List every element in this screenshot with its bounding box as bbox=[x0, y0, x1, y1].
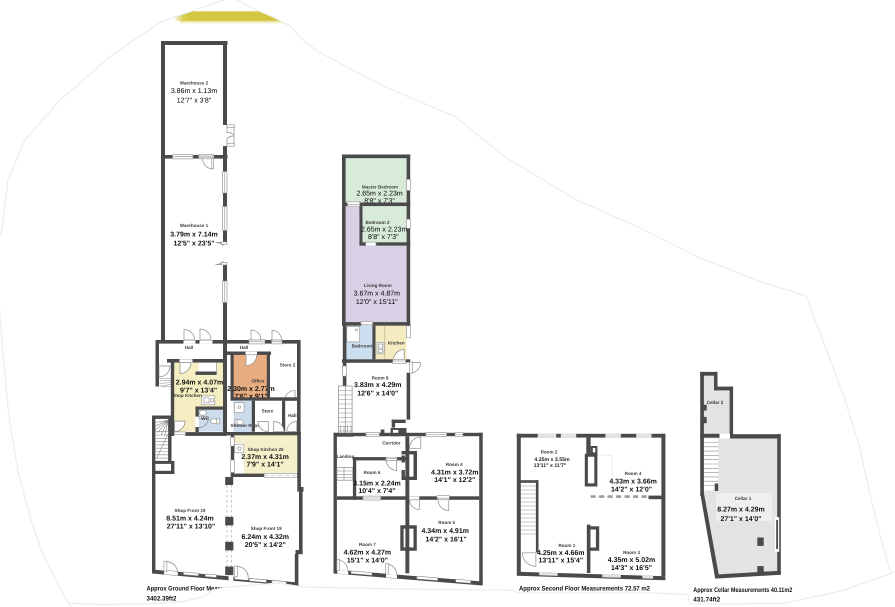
svg-text:Approx Cellar Measurements 40.: Approx Cellar Measurements 40.11m2 bbox=[693, 587, 792, 594]
svg-text:Living Room: Living Room bbox=[364, 283, 392, 288]
svg-text:4.62m x 4.27m: 4.62m x 4.27m bbox=[344, 549, 391, 556]
svg-text:Hall: Hall bbox=[240, 345, 248, 350]
svg-text:4.33m x 3.66m: 4.33m x 3.66m bbox=[609, 478, 656, 485]
svg-text:Room 1: Room 1 bbox=[558, 543, 575, 548]
svg-text:10'4" x 7'4": 10'4" x 7'4" bbox=[358, 488, 395, 495]
svg-text:14'1" x 12'2": 14'1" x 12'2" bbox=[434, 477, 475, 484]
svg-text:6.24m x 4.32m: 6.24m x 4.32m bbox=[242, 534, 289, 541]
svg-text:4.35m x 5.02m: 4.35m x 5.02m bbox=[608, 557, 655, 564]
svg-text:Warehouse 1: Warehouse 1 bbox=[180, 223, 209, 228]
svg-text:Kitchen: Kitchen bbox=[388, 340, 405, 345]
svg-text:Hall: Hall bbox=[288, 413, 296, 418]
svg-text:Room 7: Room 7 bbox=[359, 542, 376, 547]
svg-text:4.25m x 3.55m: 4.25m x 3.55m bbox=[534, 457, 570, 463]
svg-text:3.79m x 7.14m: 3.79m x 7.14m bbox=[170, 232, 217, 239]
svg-text:Bedroom 2: Bedroom 2 bbox=[366, 220, 390, 225]
svg-text:Store 2: Store 2 bbox=[280, 362, 296, 367]
svg-text:27'1" x 14'0": 27'1" x 14'0" bbox=[720, 516, 761, 523]
svg-text:Warehouse 2: Warehouse 2 bbox=[180, 81, 209, 86]
svg-text:4.31m x 3.72m: 4.31m x 3.72m bbox=[431, 469, 478, 476]
svg-text:Room 6: Room 6 bbox=[364, 470, 381, 475]
svg-text:3.15m x 2.24m: 3.15m x 2.24m bbox=[353, 481, 400, 488]
svg-text:13'11" x 11'7": 13'11" x 11'7" bbox=[534, 463, 567, 469]
svg-text:3.83m x 4.29m: 3.83m x 4.29m bbox=[354, 382, 401, 389]
svg-text:Landing: Landing bbox=[337, 454, 355, 459]
svg-text:2.65m x 2.23m: 2.65m x 2.23m bbox=[356, 191, 402, 198]
svg-text:Corridor: Corridor bbox=[382, 440, 401, 445]
svg-text:Shop Front 19: Shop Front 19 bbox=[251, 526, 282, 531]
svg-text:8.27m x 4.29m: 8.27m x 4.29m bbox=[717, 507, 764, 514]
svg-text:Room 5: Room 5 bbox=[438, 520, 455, 525]
svg-text:Hall: Hall bbox=[185, 345, 193, 350]
svg-text:14'2" x 16'1": 14'2" x 16'1" bbox=[426, 536, 467, 543]
svg-text:Room 9: Room 9 bbox=[372, 375, 389, 380]
svg-text:27'11" x 13'10": 27'11" x 13'10" bbox=[167, 523, 216, 530]
svg-text:Bathroom: Bathroom bbox=[352, 344, 374, 349]
svg-text:14'3" x 16'5": 14'3" x 16'5" bbox=[611, 565, 652, 572]
svg-text:7'9" x 14'1": 7'9" x 14'1" bbox=[246, 462, 283, 469]
svg-text:4.34m x 4.91m: 4.34m x 4.91m bbox=[421, 528, 468, 535]
svg-text:Cellar 2: Cellar 2 bbox=[707, 400, 724, 405]
svg-text:Store: Store bbox=[262, 409, 274, 414]
svg-text:2.37m x 4.31m: 2.37m x 4.31m bbox=[241, 454, 288, 461]
svg-text:3.86m x 1.13m: 3.86m x 1.13m bbox=[171, 88, 217, 95]
svg-text:3.67m x 4.87m: 3.67m x 4.87m bbox=[354, 291, 400, 298]
svg-text:Shop Kitchen: Shop Kitchen bbox=[172, 393, 202, 398]
svg-text:WC: WC bbox=[201, 416, 209, 421]
svg-text:12'7" x 3'8": 12'7" x 3'8" bbox=[177, 98, 212, 105]
svg-text:8.51m x 4.24m: 8.51m x 4.24m bbox=[166, 516, 213, 523]
svg-text:Room 3: Room 3 bbox=[623, 550, 640, 555]
svg-text:12'5" x 23'5": 12'5" x 23'5" bbox=[173, 241, 214, 248]
svg-text:3402.39ft2: 3402.39ft2 bbox=[147, 596, 177, 603]
svg-text:2.94m x 4.07m: 2.94m x 4.07m bbox=[176, 379, 223, 386]
svg-text:Shower Room: Shower Room bbox=[231, 423, 262, 428]
svg-text:Office: Office bbox=[251, 379, 264, 384]
svg-text:12'6" x 14'0": 12'6" x 14'0" bbox=[357, 390, 398, 397]
svg-text:4.25m x 4.66m: 4.25m x 4.66m bbox=[537, 550, 584, 557]
svg-text:14'2" x 12'0": 14'2" x 12'0" bbox=[611, 487, 652, 494]
svg-text:12'0" x 15'11": 12'0" x 15'11" bbox=[356, 299, 398, 306]
svg-text:Cellar 1: Cellar 1 bbox=[735, 496, 752, 501]
svg-text:Master Bedroom: Master Bedroom bbox=[362, 184, 398, 189]
svg-text:Approx Second Floor Measuremen: Approx Second Floor Measurements 72.57 m… bbox=[519, 585, 650, 592]
svg-text:2.65m x 2.23m: 2.65m x 2.23m bbox=[361, 226, 407, 233]
svg-text:Room 4: Room 4 bbox=[625, 471, 642, 476]
svg-text:Room 4: Room 4 bbox=[446, 462, 463, 467]
svg-text:8'8" x 7'3": 8'8" x 7'3" bbox=[368, 234, 399, 241]
svg-text:13'11" x 15'4": 13'11" x 15'4" bbox=[538, 557, 583, 564]
svg-text:15'1" x 14'0": 15'1" x 14'0" bbox=[347, 558, 388, 565]
svg-text:Shop Front 19: Shop Front 19 bbox=[175, 508, 206, 513]
svg-text:Shop Kitchen 26: Shop Kitchen 26 bbox=[248, 447, 284, 452]
svg-text:431.74ft2: 431.74ft2 bbox=[693, 596, 720, 603]
svg-text:20'5" x 14'2": 20'5" x 14'2" bbox=[245, 542, 286, 549]
svg-text:Room 2: Room 2 bbox=[541, 450, 558, 455]
